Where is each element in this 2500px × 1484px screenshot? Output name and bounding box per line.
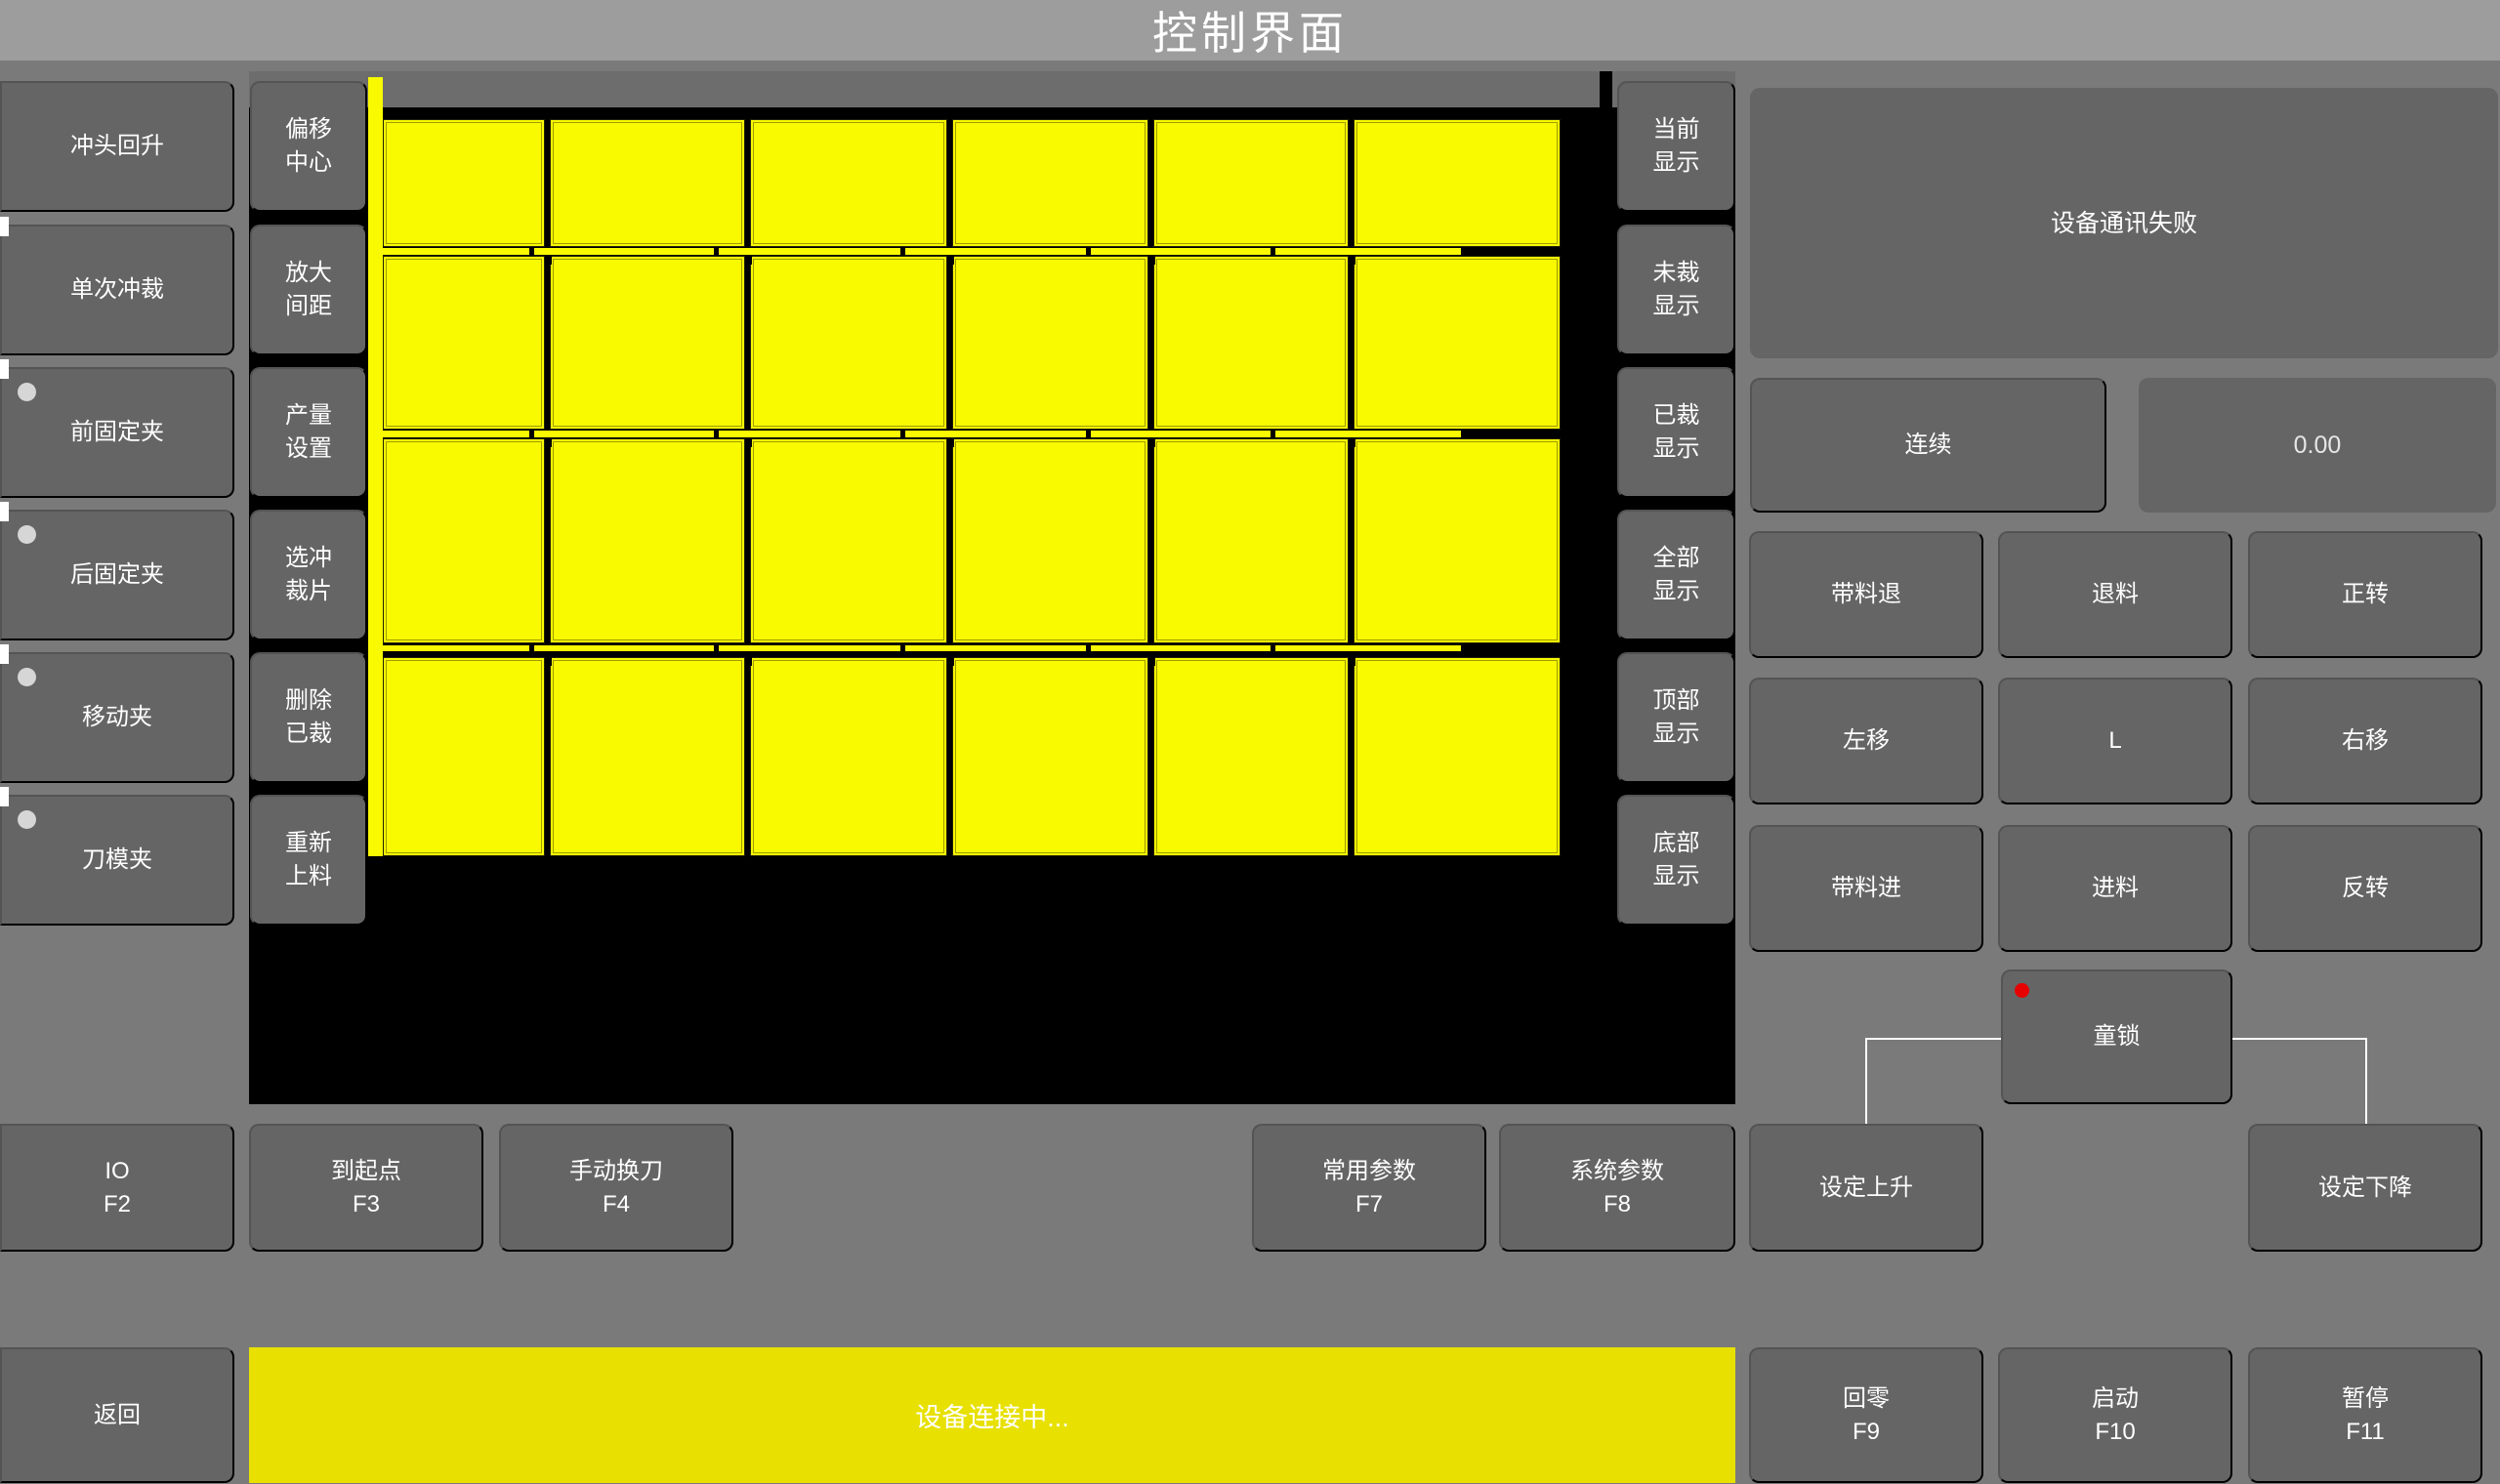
back-button[interactable]: 返回 bbox=[0, 1347, 234, 1483]
delete-cut-button[interactable]: 删除 已裁 bbox=[250, 652, 367, 783]
piece-cell[interactable] bbox=[1153, 438, 1349, 643]
button-label: 正转 bbox=[2342, 578, 2389, 611]
indicator-dot bbox=[18, 810, 36, 829]
home-zero-f9-button[interactable]: 回零F9 bbox=[1749, 1347, 1983, 1483]
button-label: 单次冲裁 bbox=[70, 273, 164, 307]
button-label: 启动F10 bbox=[2092, 1382, 2139, 1449]
edge-marker bbox=[0, 359, 9, 379]
connection-status-text: 设备连接中... bbox=[915, 1396, 1069, 1434]
piece-cell[interactable] bbox=[1354, 256, 1561, 430]
set-lower-button[interactable]: 设定下降 bbox=[2248, 1124, 2482, 1252]
button-label: 暂停F11 bbox=[2342, 1382, 2389, 1449]
button-label: 返回 bbox=[94, 1399, 141, 1432]
button-label: 右移 bbox=[2342, 724, 2389, 758]
button-label: 冲头回升 bbox=[70, 130, 164, 163]
button-label: 刀模夹 bbox=[82, 844, 152, 877]
piece-cell[interactable] bbox=[383, 438, 545, 643]
piece-cell[interactable] bbox=[550, 119, 745, 247]
button-label: 后固定夹 bbox=[70, 558, 164, 592]
show-all-button[interactable]: 全部 显示 bbox=[1617, 510, 1735, 640]
edge-marker bbox=[0, 217, 9, 236]
cut-gap bbox=[383, 643, 1561, 657]
show-top-button[interactable]: 顶部 显示 bbox=[1617, 652, 1735, 783]
button-label: 顶部 显示 bbox=[1653, 684, 1700, 751]
strip-feed-button[interactable]: 带料进 bbox=[1749, 825, 1983, 952]
piece-cell[interactable] bbox=[952, 119, 1148, 247]
button-label: 当前 显示 bbox=[1653, 113, 1700, 180]
button-label: 童锁 bbox=[2094, 1020, 2141, 1053]
button-label: 重新 上料 bbox=[285, 827, 332, 893]
manual-tool-change-f4-button[interactable]: 手动换刀F4 bbox=[499, 1124, 733, 1252]
indicator-dot bbox=[18, 383, 36, 401]
button-label: 设定上升 bbox=[1819, 1172, 1913, 1205]
select-piece-button[interactable]: 选冲 裁片 bbox=[250, 510, 367, 640]
button-label: 放大 间距 bbox=[285, 257, 332, 323]
button-label: 带料进 bbox=[1831, 872, 1901, 905]
button-label: 左移 bbox=[1843, 724, 1890, 758]
button-label: 手动换刀F4 bbox=[569, 1155, 663, 1221]
piece-cell[interactable] bbox=[952, 256, 1148, 430]
button-label: 前固定夹 bbox=[70, 416, 164, 449]
piece-row bbox=[383, 256, 1561, 430]
button-label: 选冲 裁片 bbox=[285, 542, 332, 608]
button-label: 产量 设置 bbox=[285, 399, 332, 466]
button-label: 带料退 bbox=[1831, 578, 1901, 611]
button-label: IOF2 bbox=[104, 1155, 131, 1221]
button-label: 进料 bbox=[2092, 872, 2139, 905]
title-bar: 控制界面 bbox=[0, 0, 2500, 61]
l-button[interactable]: L bbox=[1998, 678, 2232, 804]
bracket-line bbox=[1865, 1038, 1867, 1126]
button-label: 已裁 显示 bbox=[1653, 399, 1700, 466]
material-canvas bbox=[249, 71, 1735, 1104]
piece-cell[interactable] bbox=[750, 657, 947, 856]
piece-cell[interactable] bbox=[1153, 119, 1349, 247]
system-params-f8-button[interactable]: 系统参数F8 bbox=[1499, 1124, 1735, 1252]
reverse-rotate-button[interactable]: 反转 bbox=[2248, 825, 2482, 952]
show-cut-button[interactable]: 已裁 显示 bbox=[1617, 367, 1735, 498]
button-label: 常用参数F7 bbox=[1322, 1155, 1416, 1221]
strip-back-button[interactable]: 带料退 bbox=[1749, 531, 1983, 658]
piece-cell[interactable] bbox=[383, 119, 545, 247]
pause-f11-button[interactable]: 暂停F11 bbox=[2248, 1347, 2482, 1483]
piece-cell[interactable] bbox=[1354, 438, 1561, 643]
edge-marker bbox=[0, 787, 9, 806]
piece-cell[interactable] bbox=[750, 119, 947, 247]
piece-cell[interactable] bbox=[952, 438, 1148, 643]
button-label: L bbox=[2108, 724, 2121, 758]
piece-cell[interactable] bbox=[750, 438, 947, 643]
mode-continuous-button[interactable]: 连续 bbox=[1750, 378, 2106, 513]
piece-cell[interactable] bbox=[550, 438, 745, 643]
button-label: 未裁 显示 bbox=[1653, 257, 1700, 323]
feed-material-button[interactable]: 进料 bbox=[1998, 825, 2232, 952]
button-label: 退料 bbox=[2092, 578, 2139, 611]
show-bottom-button[interactable]: 底部 显示 bbox=[1617, 795, 1735, 926]
reload-material-button[interactable]: 重新 上料 bbox=[250, 795, 367, 926]
cut-gap bbox=[383, 430, 1561, 438]
piece-row bbox=[383, 438, 1561, 643]
canvas-top-notch bbox=[1600, 71, 1612, 107]
alert-text: 设备通讯失败 bbox=[2051, 207, 2197, 240]
show-current-button[interactable]: 当前 显示 bbox=[1617, 81, 1735, 212]
button-label: 删除 已裁 bbox=[285, 684, 332, 751]
piece-cell[interactable] bbox=[750, 256, 947, 430]
moving-clamp-button[interactable]: 移动夹 bbox=[0, 652, 234, 783]
piece-cell[interactable] bbox=[1153, 256, 1349, 430]
piece-cell[interactable] bbox=[1354, 119, 1561, 247]
indicator-dot bbox=[18, 668, 36, 686]
cut-gap bbox=[383, 247, 1561, 256]
common-params-f7-button[interactable]: 常用参数F7 bbox=[1252, 1124, 1486, 1252]
die-clamp-button[interactable]: 刀模夹 bbox=[0, 795, 234, 926]
eject-material-button[interactable]: 退料 bbox=[1998, 531, 2232, 658]
edge-marker bbox=[0, 502, 9, 521]
piece-cell[interactable] bbox=[550, 256, 745, 430]
child-lock-alert-dot bbox=[2015, 983, 2029, 998]
piece-row bbox=[383, 119, 1561, 247]
button-label: 偏移 中心 bbox=[285, 113, 332, 180]
move-left-button[interactable]: 左移 bbox=[1749, 678, 1983, 804]
page-title: 控制界面 bbox=[1152, 0, 1348, 62]
piece-cell[interactable] bbox=[383, 256, 545, 430]
piece-row bbox=[383, 657, 1561, 856]
front-clamp-button[interactable]: 前固定夹 bbox=[0, 367, 234, 498]
button-label: 移动夹 bbox=[82, 701, 152, 734]
piece-grid bbox=[383, 119, 1561, 856]
button-label: 底部 显示 bbox=[1653, 827, 1700, 893]
piece-cell[interactable] bbox=[952, 657, 1148, 856]
piece-cell[interactable] bbox=[1153, 657, 1349, 856]
value-display: 0.00 bbox=[2139, 378, 2496, 513]
button-label: 设定下降 bbox=[2318, 1172, 2412, 1205]
set-rise-button[interactable]: 设定上升 bbox=[1749, 1124, 1983, 1252]
offset-center-button[interactable]: 偏移 中心 bbox=[250, 81, 367, 212]
material-edge-strip bbox=[368, 77, 383, 856]
button-label: 系统参数F8 bbox=[1570, 1155, 1664, 1221]
io-f2-button[interactable]: IOF2 bbox=[0, 1124, 234, 1252]
button-label: 回零F9 bbox=[1843, 1382, 1890, 1449]
indicator-dot bbox=[18, 525, 36, 544]
forward-rotate-button[interactable]: 正转 bbox=[2248, 531, 2482, 658]
button-label: 到起点F3 bbox=[331, 1155, 401, 1221]
edge-marker bbox=[0, 644, 9, 664]
show-uncut-button[interactable]: 未裁 显示 bbox=[1617, 225, 1735, 355]
connection-status-bar: 设备连接中... bbox=[249, 1347, 1735, 1483]
alert-message-box: 设备通讯失败 bbox=[1750, 88, 2498, 358]
enlarge-spacing-button[interactable]: 放大 间距 bbox=[250, 225, 367, 355]
output-settings-button[interactable]: 产量 设置 bbox=[250, 367, 367, 498]
child-lock-button[interactable]: 童锁 bbox=[2001, 969, 2232, 1104]
canvas-top-margin bbox=[249, 71, 1735, 107]
rear-clamp-button[interactable]: 后固定夹 bbox=[0, 510, 234, 640]
start-f10-button[interactable]: 启动F10 bbox=[1998, 1347, 2232, 1483]
button-label: 全部 显示 bbox=[1653, 542, 1700, 608]
to-origin-f3-button[interactable]: 到起点F3 bbox=[249, 1124, 483, 1252]
bracket-line bbox=[2365, 1038, 2367, 1126]
button-label: 连续 bbox=[1905, 429, 1952, 462]
value-text: 0.00 bbox=[2294, 429, 2342, 462]
button-label: 反转 bbox=[2342, 872, 2389, 905]
piece-cell[interactable] bbox=[1354, 657, 1561, 856]
punch-return-button[interactable]: 冲头回升 bbox=[0, 81, 234, 212]
piece-cell[interactable] bbox=[383, 657, 545, 856]
move-right-button[interactable]: 右移 bbox=[2248, 678, 2482, 804]
single-punch-button[interactable]: 单次冲裁 bbox=[0, 225, 234, 355]
piece-cell[interactable] bbox=[550, 657, 745, 856]
